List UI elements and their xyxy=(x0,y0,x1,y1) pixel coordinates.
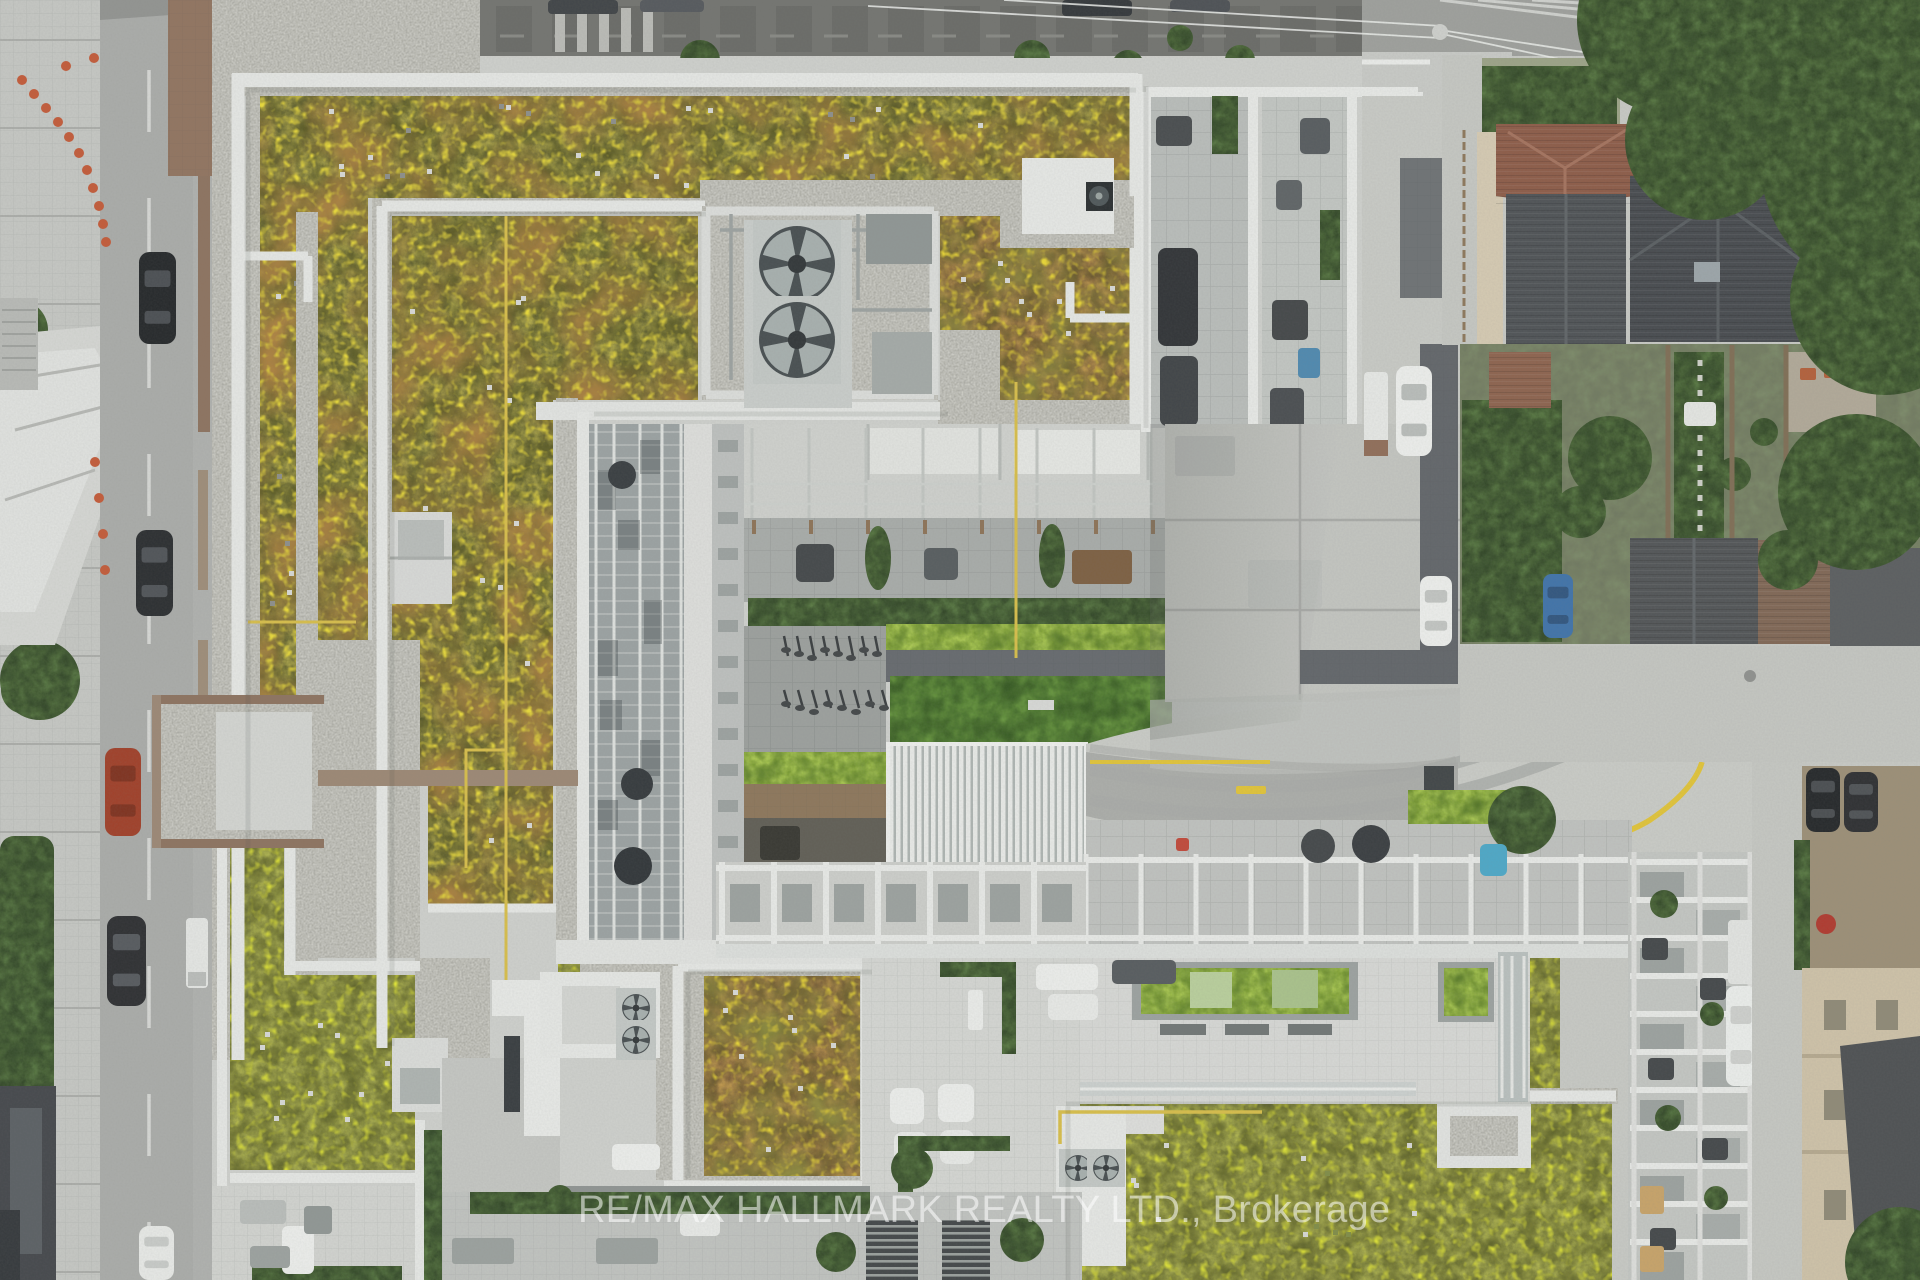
svg-text:RE/MAX HALLMARK REALTY LTD., B: RE/MAX HALLMARK REALTY LTD., Brokerage xyxy=(578,1189,1390,1231)
